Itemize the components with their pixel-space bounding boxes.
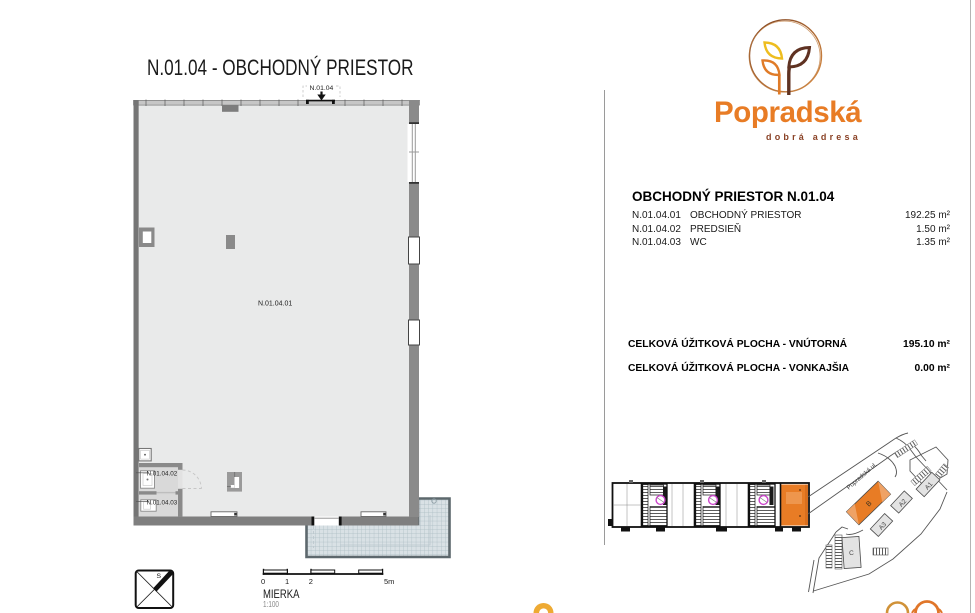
svg-text:2: 2	[309, 577, 313, 586]
svg-text:N.01.04.02: N.01.04.02	[147, 471, 178, 478]
svg-text:N.01.04.01: N.01.04.01	[258, 301, 292, 308]
svg-text:N.01.04: N.01.04	[310, 85, 334, 92]
svg-text:5m: 5m	[384, 577, 394, 586]
svg-text:C: C	[849, 550, 854, 557]
svg-text:N.01.04.03: N.01.04.03	[147, 500, 178, 507]
svg-text:1: 1	[285, 577, 289, 586]
svg-text:0: 0	[261, 577, 265, 586]
svg-text:S: S	[157, 573, 162, 580]
